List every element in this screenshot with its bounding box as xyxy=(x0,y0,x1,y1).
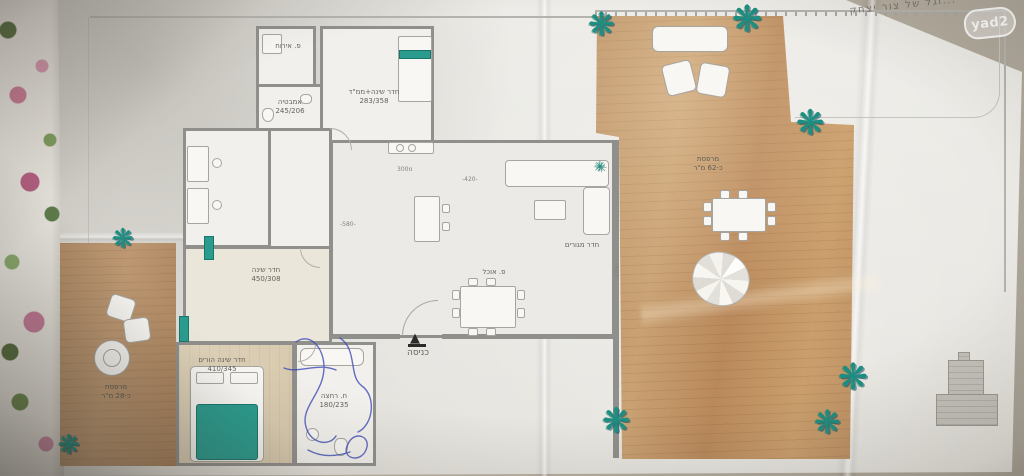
teal-cabinet xyxy=(179,316,189,342)
dim-label: -585- xyxy=(612,264,619,280)
dim-label: מ300 xyxy=(397,166,413,173)
palm-plant-icon: ❋ xyxy=(602,404,631,438)
chair xyxy=(486,328,496,336)
stool xyxy=(442,222,450,231)
plan-border-line xyxy=(88,17,89,243)
palm-plant-icon: ❋ xyxy=(732,2,762,38)
balcony-chair xyxy=(122,316,151,343)
balcony-table-inner xyxy=(103,349,121,367)
blue-pen-scribbles xyxy=(278,328,388,468)
floorplan-photo-scene: ✳ ▲ ❋ ❋ xyxy=(0,0,1024,476)
chair xyxy=(767,216,776,226)
coffee-table xyxy=(534,200,566,220)
chair xyxy=(703,202,712,212)
floral-tablecloth xyxy=(0,0,64,476)
chair xyxy=(486,278,496,286)
chair xyxy=(720,190,730,199)
desk xyxy=(187,188,209,224)
kitchen-island xyxy=(414,196,440,242)
teal-cabinet xyxy=(204,236,214,260)
plan-border-line xyxy=(90,16,596,18)
room-label-bath-top: אמבטיה245/206 xyxy=(270,98,310,116)
room-label-entrance: כניסה xyxy=(398,348,438,360)
desk-chair xyxy=(212,200,222,210)
room-label-living: חדר מגורים xyxy=(552,241,612,250)
chair xyxy=(703,216,712,226)
terrace-label-small: מרפסתכ-28 מ"ר xyxy=(96,383,136,401)
palm-plant-icon: ❋ xyxy=(588,8,615,40)
bed-teal-runner xyxy=(399,50,431,59)
palm-plant-icon: ❋ xyxy=(796,106,825,140)
chair xyxy=(517,290,525,300)
chair xyxy=(468,278,478,286)
dining-table xyxy=(460,286,516,328)
plant-icon: ✳ xyxy=(594,160,606,174)
building-locator-icon xyxy=(928,348,1006,430)
outdoor-chair xyxy=(695,62,730,99)
terrace-railing xyxy=(1004,12,1006,292)
room-corridor xyxy=(268,128,332,252)
outdoor-table xyxy=(712,198,766,232)
palm-plant-icon: ❋ xyxy=(814,406,841,438)
room-label-guest: פ. אירוח xyxy=(272,42,304,51)
dim-label: -420- xyxy=(462,176,478,183)
palm-plant-icon: ❋ xyxy=(838,360,868,396)
bed xyxy=(398,36,432,102)
terrace-label-main: מרפסתכ-62 מ"ר xyxy=(688,155,728,173)
room-label-bedroom2: חדר שינה450/308 xyxy=(244,266,288,284)
chair xyxy=(517,308,525,318)
stove-burner xyxy=(408,144,416,152)
chair xyxy=(452,290,460,300)
stool xyxy=(442,204,450,213)
sofa-chaise xyxy=(583,187,610,235)
room-label-parents: חדר שינה הורים410/345 xyxy=(192,356,252,374)
palm-plant-icon: ❋ xyxy=(58,432,80,458)
chair xyxy=(720,232,730,241)
dim-label: -580- xyxy=(340,221,356,228)
teal-blanket xyxy=(196,404,258,460)
outdoor-sofa xyxy=(652,26,728,52)
chair xyxy=(738,190,748,199)
desk-chair xyxy=(212,158,222,168)
desk xyxy=(187,146,209,182)
room-label-dining: פ. אוכל xyxy=(474,268,514,277)
yad2-watermark-logo: yad2 xyxy=(963,5,1018,40)
chair xyxy=(738,232,748,241)
chair xyxy=(767,202,776,212)
entrance-arrow-base xyxy=(408,344,426,347)
wall xyxy=(612,140,619,336)
stove-burner xyxy=(396,144,404,152)
chair xyxy=(468,328,478,336)
palm-plant-icon: ❋ xyxy=(112,226,134,252)
room-label-mamad: חדר שינה+ממ"ד283/358 xyxy=(346,88,402,106)
chair xyxy=(452,308,460,318)
